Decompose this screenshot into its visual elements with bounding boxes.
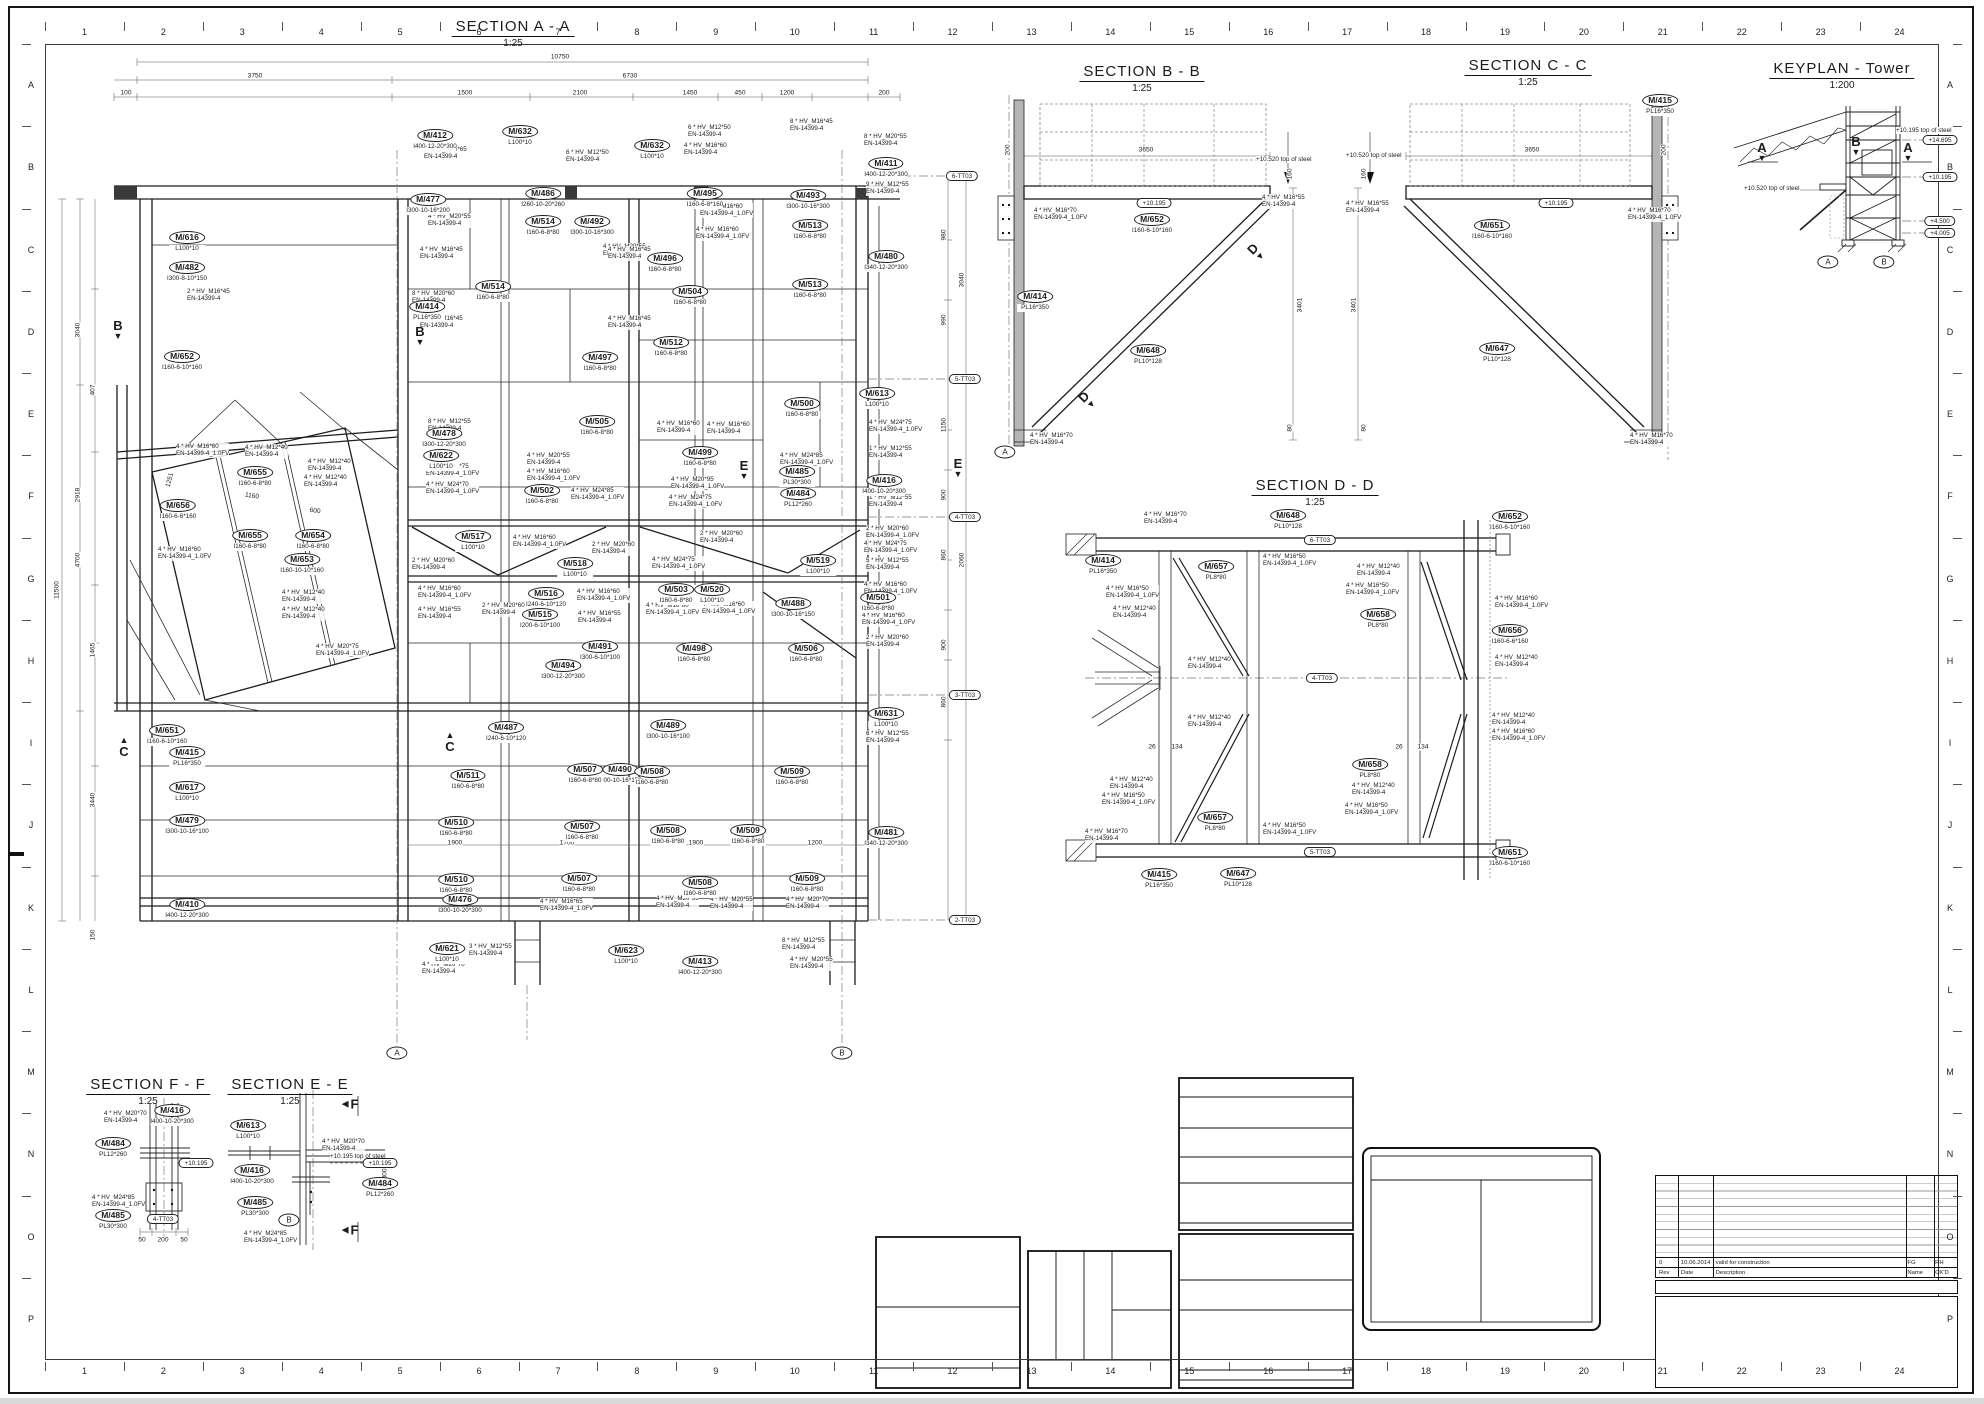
section-arrow-icon: ◀ [342, 1100, 349, 1109]
grid-ref-number: 4 [319, 1366, 324, 1376]
grid-tick [282, 1362, 283, 1371]
grid-ref-letter: P [28, 1314, 34, 1324]
dimension: 160 [1287, 168, 1294, 179]
member-bubble: M/632 [502, 125, 538, 138]
member-label: M/416 I400-10-20*300 [230, 1160, 273, 1186]
grid-ref-number: 5 [398, 1366, 403, 1376]
grid-ref-number: 23 [1816, 27, 1826, 37]
grid-ref-letter: G [27, 574, 34, 584]
grid-tick [1953, 867, 1962, 868]
level-callout: 5-TT03 [1304, 847, 1336, 857]
dimension: 134 [1171, 744, 1182, 751]
section-title-text: SECTION C - C [1465, 57, 1592, 76]
member-label: M/413 I400-12-20*300 [678, 951, 721, 977]
member-profile: I300-8-10*150 [167, 275, 207, 283]
member-label: M/415 PL16*350 [1141, 864, 1177, 890]
bolt-note: 4 * HV_M20*70EN-14399-4 [104, 1110, 147, 1125]
grid-tick [597, 22, 598, 31]
section-title-text: SECTION E - E [227, 1076, 352, 1095]
section-letter: F [350, 1224, 358, 1237]
member-bubble: M/480 [868, 250, 904, 263]
member-profile: I160-6-8*80 [682, 890, 718, 898]
member-label: M/479 I300-10-16*100 [165, 810, 208, 836]
member-bubble: M/504 [672, 285, 708, 298]
grid-ref-number: 21 [1658, 1366, 1668, 1376]
member-bubble: M/658 [1360, 608, 1396, 621]
grid-ref-letter: P [1947, 1314, 1953, 1324]
grid-tick [1544, 1362, 1545, 1371]
section-marker: ▲C [445, 731, 454, 753]
dimension: 900 [941, 639, 948, 650]
bolt-note: 4 * HV_M16*60EN-14399-4_1.0FV [696, 226, 749, 241]
member-bubble: M/631 [868, 707, 904, 720]
grid-ref-number: 16 [1263, 1366, 1273, 1376]
bolt-note: 4 * HV_M20*55EN-14399-4 [527, 452, 570, 467]
dimension: 2100 [573, 90, 588, 97]
bolt-note: 4 * HV_M12*40EN-14399-4 [1357, 563, 1400, 578]
member-bubble: M/503 [658, 583, 694, 596]
bolt-note: 4 * HV_M16*70EN-14399-4 [1144, 511, 1187, 526]
grid-ref-letter: K [28, 903, 34, 913]
member-profile: I300-10-16*100 [165, 828, 208, 836]
bolt-note: 6 * HV_M12*50EN-14399-4 [566, 149, 609, 164]
member-label: M/485 PL30*300 [95, 1205, 131, 1231]
bolt-note: 2 * HV_M20*60EN-14399-4 [482, 602, 525, 617]
member-profile: I400-12-20*300 [165, 912, 208, 920]
member-label: M/509 I160-6-8*80 [789, 868, 825, 894]
member-label: M/613 L100*10 [859, 383, 895, 409]
member-bubble: M/657 [1197, 811, 1233, 824]
grid-tick [1308, 22, 1309, 31]
bolt-note: 4 * HV_M16*70EN-14399-4 [1085, 828, 1128, 843]
member-label: M/652 I160-6-10*160 [162, 346, 202, 372]
member-bubble: M/648 [1270, 509, 1306, 522]
grid-ref-number: 10 [790, 27, 800, 37]
grid-tick [1953, 291, 1962, 292]
member-profile: I300-10-16*100 [646, 733, 689, 741]
grid-tick [45, 1362, 46, 1371]
level-callout: +14.695 [1923, 135, 1958, 145]
member-label: M/504 I160-6-8*80 [672, 281, 708, 307]
member-label: M/496 I160-6-8*80 [647, 248, 683, 274]
member-label: M/515 I200-6-10*100 [520, 604, 560, 630]
dimension: 150 [90, 929, 97, 940]
bolt-note: 4 * HV_M12*40EN-14399-4 [282, 606, 325, 621]
grid-tick [1953, 1196, 1962, 1197]
bolt-note: 4 * HV_M20*55EN-14399-4 [710, 896, 753, 911]
member-bubble: M/520 [694, 583, 730, 596]
grid-ref-letter: B [1947, 162, 1953, 172]
dimension: 1900 [448, 840, 463, 847]
grid-tick [22, 1278, 31, 1279]
grid-ref-letter: J [29, 820, 34, 830]
grid-tick [1150, 22, 1151, 31]
member-label: M/513 I160-6-8*80 [792, 215, 828, 241]
grid-tick [755, 1362, 756, 1371]
member-label: M/658 PL8*80 [1360, 604, 1396, 630]
bolt-note: 4 * HV_M20*70EN-14399-4 [786, 896, 829, 911]
member-bubble: M/497 [582, 351, 618, 364]
member-bubble: M/514 [525, 215, 561, 228]
bolt-note: 4 * HV_M16*60EN-14399-4_1.0FV [577, 588, 630, 603]
grid-ref-number: 7 [555, 1366, 560, 1376]
member-label: M/657 PL8*80 [1197, 807, 1233, 833]
member-bubble: M/481 [868, 826, 904, 839]
section-title: SECTION D - D 1:25 [1252, 477, 1379, 508]
bolt-note: 8 * HV_M12*55EN-14399-4 [782, 937, 825, 952]
member-label: M/648 PL10*128 [1130, 340, 1166, 366]
member-label: M/507 I160-6-8*80 [561, 868, 597, 894]
member-bubble: M/505 [579, 415, 615, 428]
member-bubble: M/655 [237, 466, 273, 479]
grid-ref-letter: K [1947, 903, 1953, 913]
member-label: M/520 L100*10 [694, 579, 730, 605]
dimension: 100 [120, 90, 131, 97]
member-label: M/502 I160-6-8*80 [524, 480, 560, 506]
grid-tick [22, 126, 31, 127]
member-bubble: M/651 [149, 724, 185, 737]
revision-date: 10.06.2014 [1678, 1258, 1713, 1267]
grid-ref-number: 8 [634, 1366, 639, 1376]
bolt-note: 4 * HV_M16*60EN-14399-4_1.0FV [1495, 595, 1548, 610]
grid-ref-number: 10 [790, 1366, 800, 1376]
grid-ref-letter: E [1947, 409, 1953, 419]
grid-ref-number: 14 [1105, 27, 1115, 37]
member-bubble: M/413 [682, 955, 718, 968]
bolt-note: 4 * HV_M24*85EN-14399-4_1.0FV [244, 1230, 297, 1245]
grid-tick [1387, 22, 1388, 31]
member-profile: PL16*350 [1141, 882, 1177, 890]
level-callout: +4.005 [1924, 228, 1955, 238]
member-bubble: M/623 [608, 944, 644, 957]
grid-ref-letter: N [1947, 1149, 1954, 1159]
member-label: M/494 I300-12-20*300 [541, 655, 584, 681]
bolt-note: 4 * HV_M12*40EN-14399-4 [1113, 605, 1156, 620]
member-bubble: M/651 [1492, 846, 1528, 859]
member-profile: I340-12-20*300 [864, 264, 907, 272]
member-label: M/518 L100*10 [557, 553, 593, 579]
member-profile: L100*10 [694, 597, 730, 605]
member-bubble: M/415 [1642, 94, 1678, 107]
bolt-note: 4 * HV_M12*40EN-14399-4 [1188, 714, 1231, 729]
grid-tick [913, 22, 914, 31]
section-letter: F [350, 1098, 358, 1111]
member-profile: I160-6-8*80 [730, 838, 766, 846]
section-arrow-icon: ◀ [342, 1226, 349, 1235]
member-bubble: M/493 [790, 189, 826, 202]
grid-ref-letter: N [28, 1149, 35, 1159]
member-profile: L100*10 [557, 571, 593, 579]
member-label: M/410 I400-12-20*300 [165, 894, 208, 920]
bolt-note: 4 * HV_M16*50EN-14399-4_1.0FV [1263, 822, 1316, 837]
section-title-text: SECTION B - B [1079, 63, 1204, 82]
member-profile: I160-6-8*80 [658, 597, 694, 605]
member-label: M/503 I160-6-8*80 [658, 579, 694, 605]
grid-tick [992, 22, 993, 31]
member-profile: I160-6-8*80 [634, 779, 670, 787]
member-profile: I160-6-8*80 [524, 498, 560, 506]
dimension: 160 [1361, 168, 1368, 179]
grid-tick [22, 291, 31, 292]
grid-ref-number: 24 [1895, 1366, 1905, 1376]
member-label: M/651 I160-6-10*160 [1490, 842, 1530, 868]
member-label: M/508 I160-6-8*80 [650, 820, 686, 846]
member-profile: PL8*80 [1360, 622, 1396, 630]
grid-tick [22, 949, 31, 950]
grid-tick [22, 1196, 31, 1197]
member-label: M/653 I160-10-10*160 [280, 549, 323, 575]
member-profile: I340-12-20*300 [864, 840, 907, 848]
grid-tick [22, 44, 31, 45]
bolt-note: 4 * HV_M16*50EN-14399-4_1.0FV [1346, 582, 1399, 597]
grid-tick [22, 620, 31, 621]
member-label: M/648 PL10*128 [1270, 505, 1306, 531]
grid-tick [282, 22, 283, 31]
member-bubble: M/507 [564, 820, 600, 833]
member-label: M/622 L100*10 [423, 445, 459, 471]
revision-rev: 0 [1656, 1258, 1678, 1267]
member-profile: I160-6-8*80 [567, 777, 603, 785]
bolt-note: 4 * HV_M20*55EN-14399-4 [428, 213, 471, 228]
member-profile: I160-6-8*80 [653, 350, 689, 358]
dimension: 3650 [1139, 147, 1154, 154]
level-callout: +10.195 [1539, 198, 1574, 208]
member-label: M/507 I160-6-8*80 [564, 816, 600, 842]
grid-ref-letter: D [1947, 327, 1954, 337]
level-callout: 6-TT03 [946, 171, 978, 181]
section-arrow-icon: ▼ [740, 472, 749, 481]
section-marker: ▲C [119, 736, 128, 758]
member-bubble: M/485 [779, 465, 815, 478]
dimension: 26 [1148, 744, 1155, 751]
member-profile: L100*10 [800, 568, 836, 576]
member-bubble: M/487 [488, 721, 524, 734]
member-label: M/493 I300-10-16*300 [786, 185, 829, 211]
level-callout: 6-TT03 [1304, 535, 1336, 545]
revision-ckd: RH [1932, 1258, 1957, 1267]
level-callout: 3-TT03 [949, 690, 981, 700]
dimension: 3040 [75, 323, 82, 338]
dimension: 200 [1661, 144, 1668, 155]
bolt-note: 4 * HV_M16*70EN-14399-4_1.0FV [1628, 207, 1681, 222]
grid-tick [124, 22, 125, 31]
grid-tick [203, 22, 204, 31]
member-label: M/657 PL8*80 [1198, 556, 1234, 582]
bolt-note: 4 * HV_M16*65EN-14399-4_1.0FV [540, 898, 593, 913]
member-profile: I160-6-8*80 [792, 233, 828, 241]
member-profile: I160-6-8*80 [579, 429, 615, 437]
grid-tick [22, 1031, 31, 1032]
dimension: 50 [180, 1237, 187, 1244]
grid-tick [1953, 538, 1962, 539]
section-title: KEYPLAN - Tower 1:200 [1769, 60, 1914, 91]
grid-tick [124, 1362, 125, 1371]
member-bubble: M/415 [169, 746, 205, 759]
section-title: SECTION B - B 1:25 [1079, 63, 1204, 94]
member-bubble: M/621 [429, 942, 465, 955]
member-bubble: M/485 [237, 1196, 273, 1209]
grid-tick [1953, 949, 1962, 950]
member-bubble: M/652 [164, 350, 200, 363]
section-letter: C [445, 740, 454, 753]
grid-tick [1466, 1362, 1467, 1371]
member-bubble: M/510 [438, 816, 474, 829]
member-bubble: M/511 [450, 769, 485, 782]
bolt-note: 4 * HV_M16*60EN-14399-4 [684, 142, 727, 157]
bolt-note: 2 * HV_M20*60EN-14399-4 [592, 541, 635, 556]
member-label: M/508 I160-6-8*80 [634, 761, 670, 787]
grid-ref-number: 20 [1579, 1366, 1589, 1376]
member-label: M/485 PL30*300 [237, 1192, 273, 1218]
member-bubble: M/507 [561, 872, 597, 885]
grid-tick [1953, 209, 1962, 210]
bolt-note: 4 * HV_M20*55EN-14399-4 [790, 956, 833, 971]
member-bubble: M/656 [1492, 624, 1528, 637]
bolt-note: 4 * HV_M16*50EN-14399-4_1.0FV [1263, 553, 1316, 568]
dimension: 50 [138, 1237, 145, 1244]
member-profile: I160-6-10*160 [1490, 860, 1530, 868]
section-marker: A▼ [1903, 141, 1912, 163]
member-label: M/500 I160-6-8*80 [784, 393, 820, 419]
member-profile: I160-6-10*160 [1472, 233, 1512, 241]
member-profile: I160-6-8*80 [672, 299, 708, 307]
member-bubble: M/657 [1198, 560, 1234, 573]
fold-mark [8, 852, 24, 856]
member-profile: L100*10 [169, 795, 205, 803]
member-label: M/519 L100*10 [800, 550, 836, 576]
bolt-note: 1 * HV_M12*55EN-14399-4 [869, 445, 912, 460]
dimension: 980 [941, 229, 948, 240]
grid-ref-number: 2 [161, 27, 166, 37]
bolt-note: 4 * HV_M12*40EN-14399-4 [1492, 712, 1535, 727]
grid-ref-number: 20 [1579, 27, 1589, 37]
grid-ref-letter: M [1946, 1067, 1954, 1077]
member-label: M/517 L100*10 [455, 526, 491, 552]
bolt-note: 4 * HV_M16*55EN-14399-4 [578, 610, 621, 625]
member-label: M/414 PL16*350 [1085, 550, 1121, 576]
member-profile: I300-10-16*200 [406, 207, 449, 215]
member-bubble: M/512 [653, 336, 689, 349]
section-scale: 1:25 [1079, 83, 1204, 94]
bolt-note: 4 * HV_M16*55EN-14399-4 [418, 606, 461, 621]
revision-name: FG [1904, 1258, 1932, 1267]
member-bubble: M/648 [1130, 344, 1166, 357]
section-scale: 1:25 [227, 1096, 352, 1107]
member-profile: I160-6-8*80 [450, 783, 485, 791]
grid-ref-number: 16 [1263, 27, 1273, 37]
section-arrow-icon: ▼ [1758, 154, 1767, 163]
member-bubble: M/507 [567, 763, 603, 776]
member-bubble: M/499 [682, 446, 718, 459]
member-label: M/486 I260-10-20*260 [521, 183, 564, 209]
grid-ref-number: 3 [240, 27, 245, 37]
grid-ref-number: 19 [1500, 1366, 1510, 1376]
member-profile: PL30*300 [237, 1210, 273, 1218]
grid-tick [1781, 22, 1782, 31]
member-label: M/631 L100*10 [868, 703, 904, 729]
bolt-note: 4 * HV_M24*85EN-14399-4_1.0FV [571, 487, 624, 502]
member-profile: PL8*80 [1198, 574, 1234, 582]
grid-ref-letter: D [28, 327, 35, 337]
bolt-note: 4 * HV_M24*75EN-14399-4_1.0FV [669, 494, 722, 509]
member-label: M/656 I160-6-6*160 [160, 495, 196, 521]
member-bubble: M/488 [775, 597, 811, 610]
grid-ref-number: 9 [713, 1366, 718, 1376]
grid-tick [519, 1362, 520, 1371]
grid-tick [22, 455, 31, 456]
member-profile: L100*10 [502, 139, 538, 147]
section-arrow-icon: ▼ [954, 470, 963, 479]
grid-ref-number: 3 [240, 1366, 245, 1376]
member-profile: I400-10-20*300 [230, 1178, 273, 1186]
member-label: M/658 PL8*80 [1352, 754, 1388, 780]
member-label: M/508 I160-6-8*80 [682, 872, 718, 898]
member-bubble: M/500 [784, 397, 820, 410]
member-bubble: M/485 [95, 1209, 131, 1222]
dimension: 1900 [689, 840, 704, 847]
member-label: M/497 I160-6-8*80 [582, 347, 618, 373]
member-bubble: M/656 [160, 499, 196, 512]
dimension: 3750 [248, 73, 263, 80]
bolt-note: 4 * HV_M12*40EN-14399-4 [1495, 654, 1538, 669]
bolt-note: 4 * HV_M24*75EN-14399-4_1.0FV [869, 419, 922, 434]
member-bubble: M/501 [860, 591, 896, 604]
member-label: M/481 I340-12-20*300 [864, 822, 907, 848]
member-profile: I160-10-10*160 [280, 567, 323, 575]
member-profile: PL8*80 [1352, 772, 1388, 780]
dimension: 3440 [90, 793, 97, 808]
member-profile: L100*10 [859, 401, 895, 409]
member-profile: I200-6-10*100 [520, 622, 560, 630]
member-bubble: M/658 [1352, 758, 1388, 771]
member-label: M/513 I160-6-8*80 [792, 274, 828, 300]
bolt-note: 4 * HV_M16*45EN-14399-4 [608, 315, 651, 330]
section-title-text: SECTION F - F [86, 1076, 210, 1095]
member-bubble: M/508 [634, 765, 670, 778]
grid-tick [1953, 44, 1962, 45]
dimension: 1500 [458, 90, 473, 97]
dimension: 860 [941, 696, 948, 707]
bolt-note: 4 * HV_M16*60EN-14399-4_1.0FV [862, 612, 915, 627]
bolt-note: 4 * HV_M12*40EN-14399-4 [1352, 782, 1395, 797]
member-bubble: M/516 [528, 587, 564, 600]
dimension: 3401 [1351, 298, 1358, 313]
level-callout: 4-TT03 [147, 1214, 179, 1224]
dimension: 26 [1395, 744, 1402, 751]
member-bubble: M/652 [1134, 213, 1170, 226]
grid-ref-number: 13 [1026, 27, 1036, 37]
grid-ref-number: 8 [634, 27, 639, 37]
grid-ref-number: 11 [869, 27, 878, 37]
member-bubble: M/513 [792, 219, 828, 232]
member-bubble: M/484 [780, 487, 816, 500]
bolt-note: 4 * HV_M12*40EN-14399-4 [1188, 656, 1231, 671]
dimension: 1150 [941, 418, 948, 432]
member-bubble: M/486 [525, 187, 561, 200]
member-profile: I160-6-8*160 [687, 201, 723, 209]
section-scale: 1:25 [86, 1096, 210, 1107]
grid-tick [755, 22, 756, 31]
section-arrow-icon: ▼ [416, 338, 425, 347]
member-profile: I160-6-8*80 [561, 886, 597, 894]
grid-tick [1150, 1362, 1151, 1371]
member-label: M/484 PL12*260 [780, 483, 816, 509]
grid-ref-letter: H [1947, 656, 1954, 666]
member-label: M/514 I160-6-8*80 [525, 211, 561, 237]
member-profile: PL30*300 [95, 1223, 131, 1231]
grid-tick [440, 22, 441, 31]
grid-ref-letter: F [28, 491, 34, 501]
